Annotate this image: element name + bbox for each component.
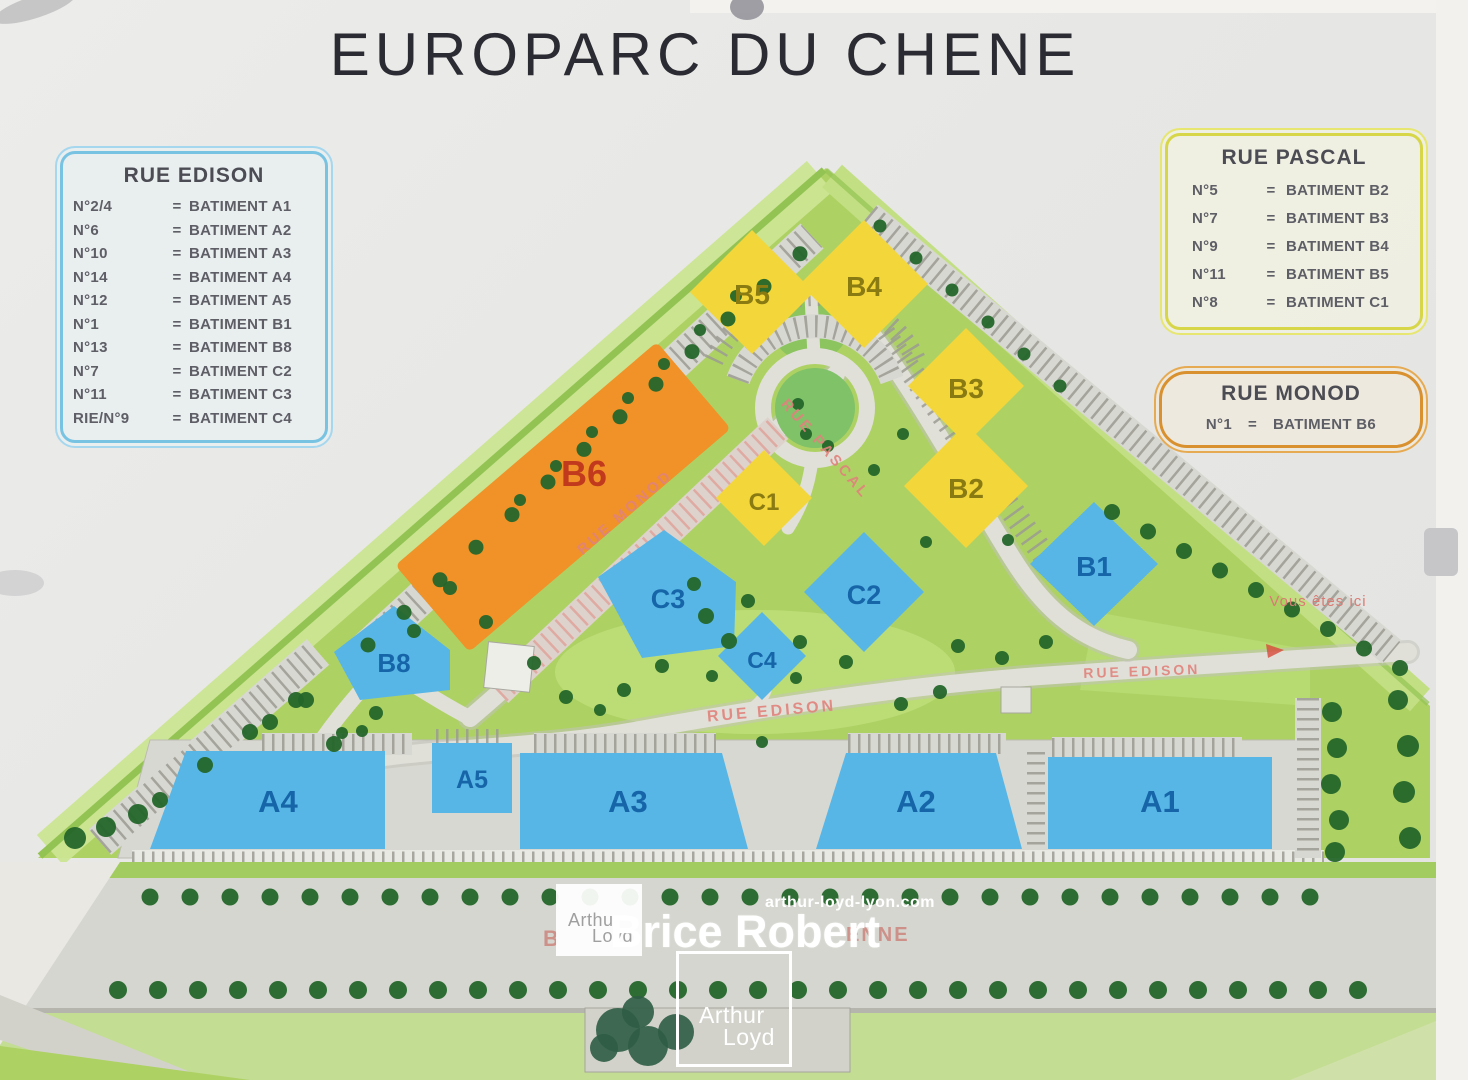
- building-b8-label: B8: [377, 648, 410, 678]
- building-a1-label: A1: [1140, 784, 1180, 819]
- legend-pascal-title: RUE PASCAL: [1178, 146, 1410, 170]
- building-c2-label: C2: [847, 580, 882, 610]
- photo-margin-top: [690, 0, 1468, 13]
- building-a3-label: A3: [608, 784, 648, 819]
- legend-row: N°10=BATIMENT A3: [73, 242, 315, 266]
- legend-row: N°5=BATIMENT B2: [1178, 177, 1410, 205]
- building-b4-label: B4: [846, 271, 882, 302]
- building-a2-label: A2: [896, 784, 936, 819]
- legend-rue-edison: RUE EDISON N°2/4=BATIMENT A1 N°6=BATIMEN…: [55, 146, 333, 448]
- building-c1-label: C1: [749, 489, 780, 516]
- legend-row: N°12=BATIMENT A5: [73, 289, 315, 313]
- legend-rue-monod: RUE MONOD N°1=BATIMENT B6: [1154, 366, 1428, 453]
- legend-row: N°14=BATIMENT A4: [73, 266, 315, 290]
- legend-edison-title: RUE EDISON: [73, 164, 315, 188]
- page-title: EUROPARC DU CHENE: [0, 20, 1410, 89]
- mounting-clip: [1424, 528, 1458, 576]
- legend-row: N°2/4=BATIMENT A1: [73, 195, 315, 219]
- building-b1-label: B1: [1076, 551, 1112, 582]
- arthur-loyd-logo-bottom: Arthur Loyd: [676, 951, 792, 1067]
- building-b2-label: B2: [948, 473, 984, 504]
- building-b5-label: B5: [734, 279, 770, 310]
- legend-row: N°1=BATIMENT B6: [1172, 413, 1410, 437]
- legend-rue-pascal: RUE PASCAL N°5=BATIMENT B2 N°7=BATIMENT …: [1160, 128, 1428, 335]
- legend-row: N°11=BATIMENT C3: [73, 383, 315, 407]
- legend-row: N°8=BATIMENT C1: [1178, 289, 1410, 317]
- legend-row: N°1=BATIMENT B1: [73, 313, 315, 337]
- legend-row: N°7=BATIMENT C2: [73, 360, 315, 384]
- legend-row: RIE/N°9=BATIMENT C4: [73, 407, 315, 431]
- building-a4-label: A4: [258, 784, 298, 819]
- legend-row: N°6=BATIMENT A2: [73, 219, 315, 243]
- building-c3-label: C3: [651, 584, 686, 614]
- legend-row: N°13=BATIMENT B8: [73, 336, 315, 360]
- sign-board: B6 A1 A2 A3 A4 A5 B1 B2 B3 B4 B5 B8 C1 C…: [0, 0, 1468, 1080]
- you-are-here-label: Vous êtes ici: [1269, 593, 1366, 610]
- legend-row: N°9=BATIMENT B4: [1178, 233, 1410, 261]
- building-c4-label: C4: [747, 647, 777, 673]
- building-b6-label: B6: [561, 453, 607, 494]
- legend-row: N°7=BATIMENT B3: [1178, 205, 1410, 233]
- building-b3-label: B3: [948, 373, 984, 404]
- legend-monod-title: RUE MONOD: [1172, 382, 1410, 406]
- legend-row: N°11=BATIMENT B5: [1178, 261, 1410, 289]
- building-a5-label: A5: [456, 766, 488, 794]
